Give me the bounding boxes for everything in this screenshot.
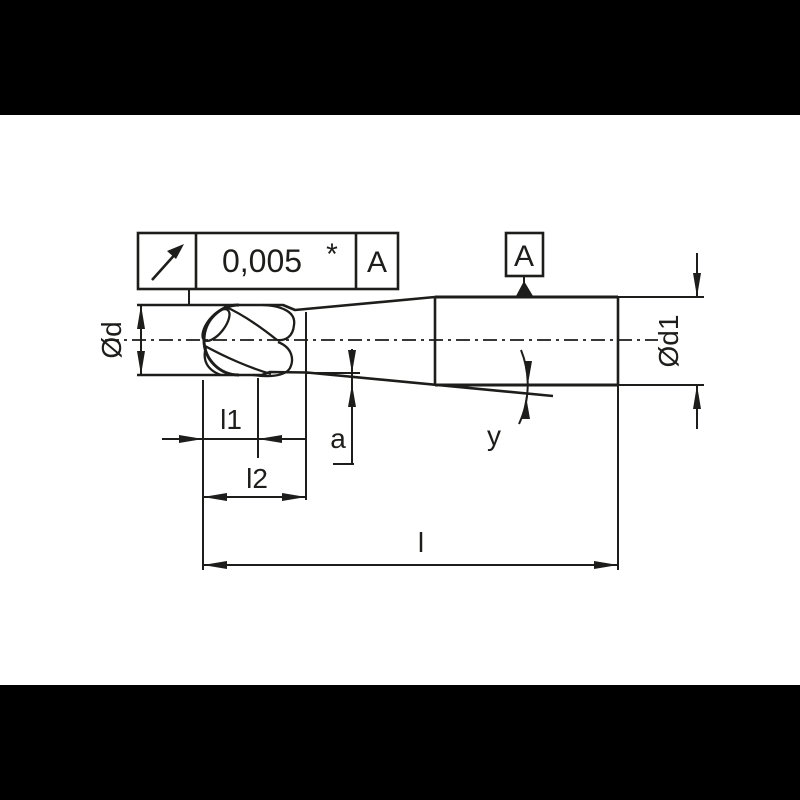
dim-l-label: l (418, 527, 424, 558)
dim-a-label: a (330, 423, 346, 454)
tolerance-datum-ref: A (367, 246, 387, 279)
dim-d-label: Ød (96, 321, 127, 358)
screenshot-root: 0,005 * A A (0, 0, 800, 800)
tolerance-modifier: * (326, 238, 338, 271)
dim-angle-label: y (487, 420, 501, 451)
datum-letter: A (514, 240, 534, 273)
dim-d1-label: Ød1 (653, 315, 684, 368)
dim-l1-label: l1 (220, 404, 242, 435)
drawing-svg: 0,005 * A A (0, 0, 800, 800)
drawing-area (0, 115, 800, 685)
dim-l2-label: l2 (246, 463, 268, 494)
tolerance-value: 0,005 (222, 243, 302, 279)
